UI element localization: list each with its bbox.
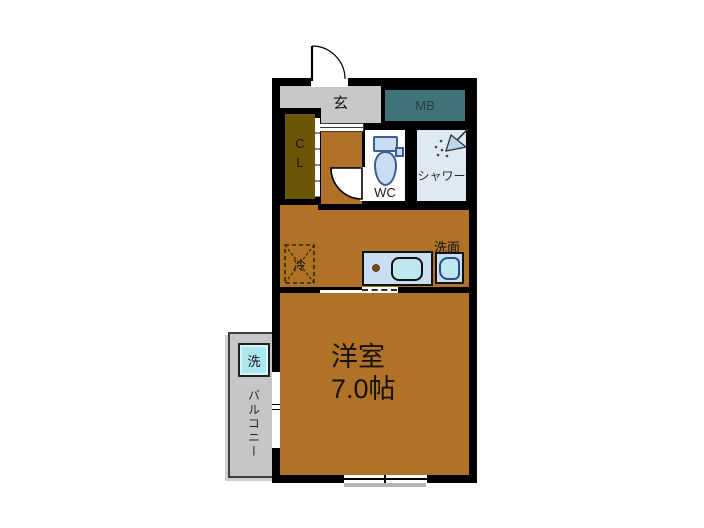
washbasin-label: 洗面 xyxy=(434,237,460,256)
toilet-label: WC xyxy=(362,185,408,200)
closet-label: CL xyxy=(285,128,315,182)
main-room-size: 7.0帖 xyxy=(331,373,396,405)
window-tick xyxy=(272,409,280,410)
closet-folding-door xyxy=(315,118,320,197)
balcony-window xyxy=(272,372,280,448)
main-room-name: 洋室 xyxy=(331,341,396,373)
sliding-door-panel xyxy=(320,287,362,290)
entrance-label: 玄 xyxy=(333,92,348,113)
kitchen-sink-icon xyxy=(391,257,423,281)
entrance-step xyxy=(318,123,364,132)
window-sill-shadow xyxy=(344,483,426,487)
washing-machine-label: 洗 xyxy=(238,343,270,377)
floorplan-canvas: 洗 バルコニー 玄 MB CL WC シャワー 冷 洗面 洋室 7.0帖 xyxy=(0,0,704,528)
meter-box-label: MB xyxy=(381,98,469,113)
balcony-label: バルコニー xyxy=(245,383,263,465)
toilet-handle-icon xyxy=(395,147,404,157)
sliding-door-track xyxy=(362,289,397,291)
burner-icon xyxy=(372,264,380,272)
shower-label: シャワー xyxy=(414,167,469,184)
window-tick xyxy=(384,475,386,483)
shower-room xyxy=(414,127,469,204)
refrigerator-label: 冷 xyxy=(284,255,315,274)
main-room-label: 洋室 7.0帖 xyxy=(331,341,396,405)
window-tick xyxy=(272,404,280,405)
wall-segment xyxy=(318,204,469,210)
washbasin-bowl-icon xyxy=(439,257,460,280)
